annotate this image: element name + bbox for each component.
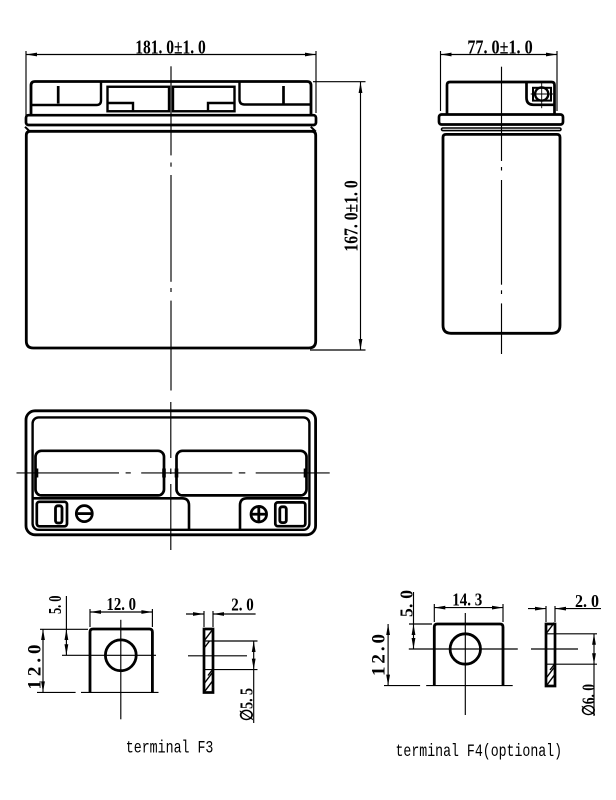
svg-text:5. 0: 5. 0 bbox=[45, 595, 65, 614]
svg-text:∅5. 5: ∅5. 5 bbox=[237, 688, 257, 721]
svg-text:12. 0: 12. 0 bbox=[107, 594, 137, 614]
svg-text:2. 0: 2. 0 bbox=[231, 595, 254, 615]
svg-text:12.0: 12.0 bbox=[25, 645, 46, 690]
svg-text:terminal F4(optional): terminal F4(optional) bbox=[396, 742, 563, 762]
svg-text:∅6. 0: ∅6. 0 bbox=[579, 684, 599, 716]
svg-text:14. 3: 14. 3 bbox=[452, 590, 482, 610]
svg-text:77. 0±1. 0: 77. 0±1. 0 bbox=[467, 37, 532, 59]
svg-text:2. 0: 2. 0 bbox=[575, 591, 599, 611]
svg-text:12.0: 12.0 bbox=[369, 634, 390, 676]
svg-text:181. 0±1. 0: 181. 0±1. 0 bbox=[135, 37, 206, 59]
svg-text:5. 0: 5. 0 bbox=[397, 590, 417, 617]
svg-text:terminal F3: terminal F3 bbox=[126, 739, 214, 759]
svg-text:167. 0±1. 0: 167. 0±1. 0 bbox=[341, 180, 363, 251]
